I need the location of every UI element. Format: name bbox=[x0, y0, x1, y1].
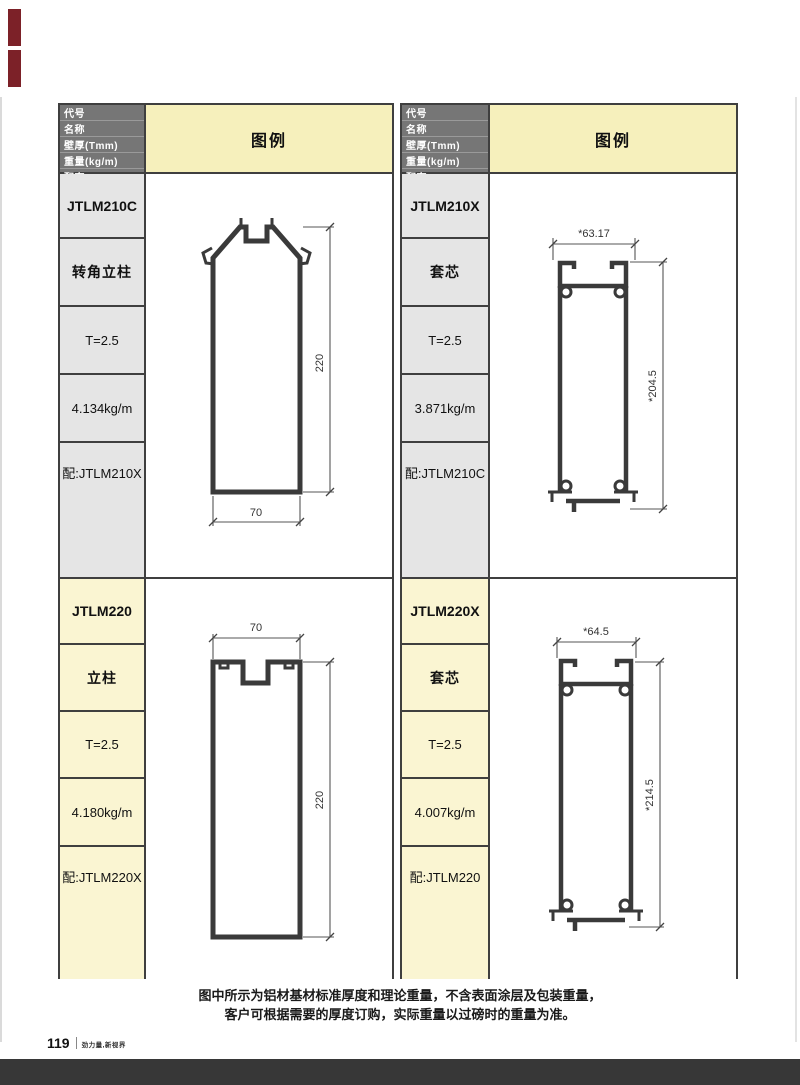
profile-weight: 4.007kg/m bbox=[402, 779, 488, 847]
profile-outline bbox=[213, 227, 300, 492]
profile-outline bbox=[213, 662, 300, 937]
page-right-rule bbox=[795, 97, 797, 1042]
page-footer-divider bbox=[76, 1037, 77, 1049]
profile-thickness: T=2.5 bbox=[60, 307, 144, 375]
page-number: 119 bbox=[47, 1035, 70, 1051]
sleeve-core-drawing: *64.5 *214.5 bbox=[490, 579, 736, 979]
profile-name: 立柱 bbox=[60, 645, 144, 712]
header-row-thickness: 壁厚(Tmm) bbox=[402, 137, 488, 153]
profile-code: JTLM210C bbox=[60, 174, 144, 239]
sleeve-core-drawing: *63.17 *204.5 bbox=[490, 174, 736, 579]
profile-name: 套芯 bbox=[402, 645, 488, 712]
legend-header: 图例 bbox=[146, 105, 392, 172]
profile-section-jtlm210c: JTLM210C 转角立柱 T=2.5 4.134kg/m 配:JTLM210X… bbox=[60, 174, 392, 579]
table-header: 代号 名称 壁厚(Tmm) 重量(kg/m) 配套 图例 bbox=[60, 105, 392, 174]
profile-match: 配:JTLM220 bbox=[402, 847, 488, 979]
column-drawing: 70 220 bbox=[146, 579, 392, 979]
profile-section-jtlm210x: JTLM210X 套芯 T=2.5 3.871kg/m 配:JTLM210C bbox=[402, 174, 736, 579]
brand-slogan: 劲力量,新视界 bbox=[82, 1037, 126, 1049]
profile-drawing-jtlm210x: *63.17 *204.5 bbox=[490, 174, 736, 577]
dim-width-label: 70 bbox=[250, 507, 262, 519]
header-label-column: 代号 名称 壁厚(Tmm) 重量(kg/m) 配套 bbox=[60, 105, 146, 172]
profile-code: JTLM220 bbox=[60, 579, 144, 645]
profile-weight: 3.871kg/m bbox=[402, 375, 488, 443]
corner-column-drawing: 220 70 bbox=[146, 174, 392, 579]
header-row-thickness: 壁厚(Tmm) bbox=[60, 137, 144, 153]
dim-height-label: 220 bbox=[314, 354, 326, 372]
edge-red-mark-bottom bbox=[8, 50, 21, 87]
dim-height-label: *204.5 bbox=[647, 370, 659, 402]
profile-code: JTLM210X bbox=[402, 174, 488, 239]
profile-section-jtlm220: JTLM220 立柱 T=2.5 4.180kg/m 配:JTLM220X 70… bbox=[60, 579, 392, 979]
footer-note-line1: 图中所示为铝材基材标准厚度和理论重量，不含表面涂层及包装重量， bbox=[0, 986, 800, 1005]
profile-drawing-jtlm210c: 220 70 bbox=[146, 174, 392, 577]
header-row-code: 代号 bbox=[60, 105, 144, 121]
label-column: JTLM210X 套芯 T=2.5 3.871kg/m 配:JTLM210C bbox=[402, 174, 490, 577]
dim-width-label: *64.5 bbox=[583, 626, 609, 638]
dim-width-label: 70 bbox=[250, 622, 262, 634]
label-column: JTLM220X 套芯 T=2.5 4.007kg/m 配:JTLM220 bbox=[402, 579, 490, 979]
profile-match: 配:JTLM210X bbox=[60, 443, 144, 577]
header-row-weight: 重量(kg/m) bbox=[60, 153, 144, 169]
dim-width-label: *63.17 bbox=[578, 228, 610, 240]
profile-thickness: T=2.5 bbox=[402, 712, 488, 779]
profile-code: JTLM220X bbox=[402, 579, 488, 645]
profile-thickness: T=2.5 bbox=[60, 712, 144, 779]
table-header: 代号 名称 壁厚(Tmm) 重量(kg/m) 配套 图例 bbox=[402, 105, 736, 174]
profile-thickness: T=2.5 bbox=[402, 307, 488, 375]
footer-note-line2: 客户可根据需要的厚度订购，实际重量以过磅时的重量为准。 bbox=[0, 1005, 800, 1024]
header-row-weight: 重量(kg/m) bbox=[402, 153, 488, 169]
profile-weight: 4.180kg/m bbox=[60, 779, 144, 847]
spec-table-left: 代号 名称 壁厚(Tmm) 重量(kg/m) 配套 图例 JTLM210C 转角… bbox=[58, 103, 394, 979]
header-row-name: 名称 bbox=[60, 121, 144, 137]
spec-table-right: 代号 名称 壁厚(Tmm) 重量(kg/m) 配套 图例 JTLM210X 套芯… bbox=[400, 103, 738, 979]
header-label-column: 代号 名称 壁厚(Tmm) 重量(kg/m) 配套 bbox=[402, 105, 490, 172]
profile-name: 转角立柱 bbox=[60, 239, 144, 307]
bottom-bar bbox=[0, 1059, 800, 1085]
profile-match: 配:JTLM220X bbox=[60, 847, 144, 979]
header-row-name: 名称 bbox=[402, 121, 488, 137]
footer-note: 图中所示为铝材基材标准厚度和理论重量，不含表面涂层及包装重量， 客户可根据需要的… bbox=[0, 986, 800, 1024]
page-footer: 119 劲力量,新视界 bbox=[47, 1035, 126, 1051]
profile-match: 配:JTLM210C bbox=[402, 443, 488, 577]
profile-name: 套芯 bbox=[402, 239, 488, 307]
dim-height-label: *214.5 bbox=[644, 779, 656, 811]
label-column: JTLM210C 转角立柱 T=2.5 4.134kg/m 配:JTLM210X bbox=[60, 174, 146, 577]
profile-drawing-jtlm220x: *64.5 *214.5 bbox=[490, 579, 736, 979]
profile-outline bbox=[561, 661, 631, 686]
header-row-code: 代号 bbox=[402, 105, 488, 121]
profile-drawing-jtlm220: 70 220 bbox=[146, 579, 392, 979]
label-column: JTLM220 立柱 T=2.5 4.180kg/m 配:JTLM220X bbox=[60, 579, 146, 979]
edge-red-mark-top bbox=[8, 9, 21, 46]
profile-weight: 4.134kg/m bbox=[60, 375, 144, 443]
profile-section-jtlm220x: JTLM220X 套芯 T=2.5 4.007kg/m 配:JTLM220 *6… bbox=[402, 579, 736, 979]
legend-header: 图例 bbox=[490, 105, 736, 172]
profile-outline bbox=[560, 263, 626, 288]
page-left-rule bbox=[0, 97, 2, 1042]
dim-height-label: 220 bbox=[314, 791, 326, 809]
